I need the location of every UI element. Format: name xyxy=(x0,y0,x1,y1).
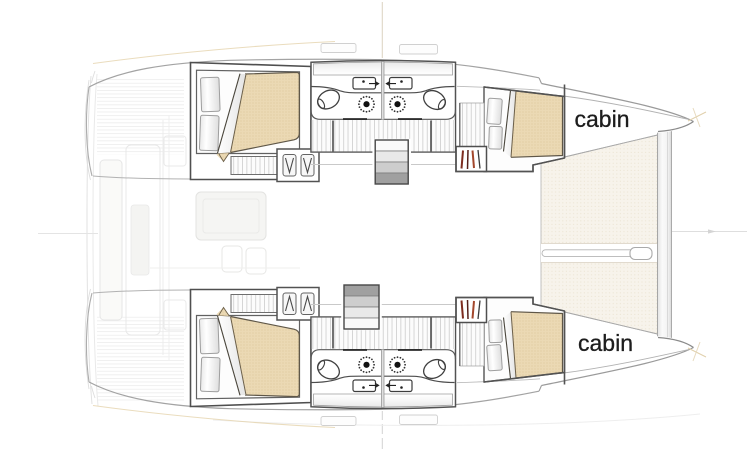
svg-text:cabin: cabin xyxy=(578,330,633,356)
svg-text:cabin: cabin xyxy=(575,106,630,132)
